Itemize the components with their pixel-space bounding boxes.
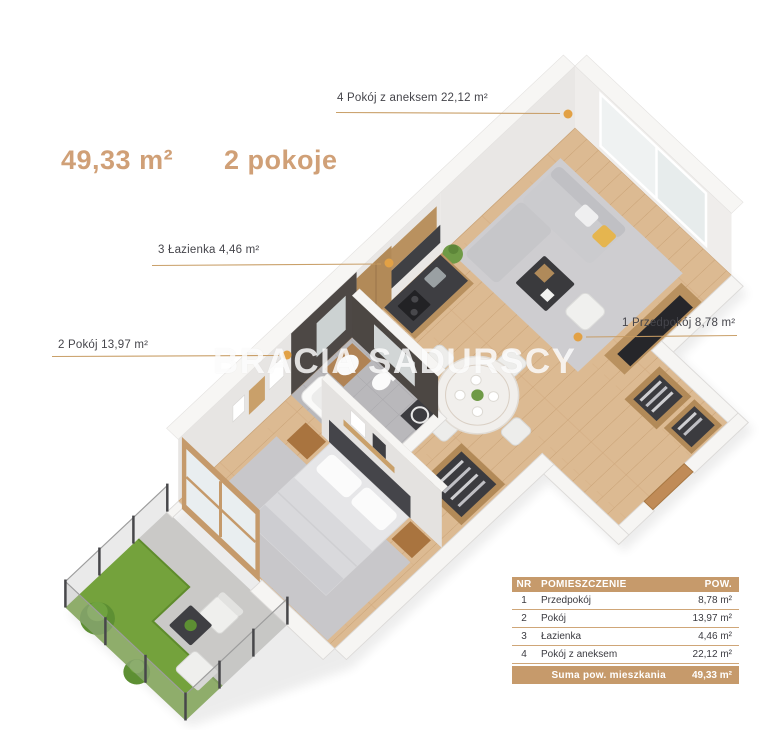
table-row: 2 Pokój 13,97 m² [512, 610, 739, 628]
row-nr: 2 [512, 613, 536, 624]
label-room-2: 2 Pokój 13,97 m² [58, 339, 148, 351]
total-area-headline: 49,33 m² [61, 145, 173, 176]
room-legend-table: NR POMIESZCZENIE POW. 1 Przedpokój 8,78 … [512, 577, 739, 684]
agency-watermark: BRACIA SADURSCY [213, 342, 576, 382]
room-count-headline: 2 pokoje [224, 145, 338, 176]
legend-header-name: POMIESZCZENIE [536, 579, 670, 590]
row-name: Łazienka [536, 631, 670, 642]
legend-header-row: NR POMIESZCZENIE POW. [512, 577, 739, 592]
legend-footer-row: Suma pow. mieszkania 49,33 m² [512, 666, 739, 684]
label-room-4: 4 Pokój z aneksem 22,12 m² [337, 92, 488, 104]
row-area: 8,78 m² [670, 595, 739, 606]
legend-header-nr: NR [512, 579, 536, 590]
row-name: Pokój z aneksem [536, 649, 670, 660]
legend-header-area: POW. [670, 579, 739, 590]
row-name: Przedpokój [536, 595, 670, 606]
legend-total-label: Suma pow. mieszkania [551, 670, 666, 681]
row-area: 13,97 m² [670, 613, 739, 624]
row-area: 22,12 m² [670, 649, 739, 660]
table-row: 1 Przedpokój 8,78 m² [512, 592, 739, 610]
floor-plan-page: 49,33 m² 2 pokoje 4 Pokój z aneksem 22,1… [0, 0, 772, 730]
legend-total-value: 49,33 m² [666, 670, 739, 681]
row-nr: 4 [512, 649, 536, 660]
row-nr: 1 [512, 595, 536, 606]
table-row: 4 Pokój z aneksem 22,12 m² [512, 646, 739, 664]
table-row: 3 Łazienka 4,46 m² [512, 628, 739, 646]
label-room-1: 1 Przedpokój 8,78 m² [622, 317, 735, 329]
row-area: 4,46 m² [670, 631, 739, 642]
row-nr: 3 [512, 631, 536, 642]
label-room-3: 3 Łazienka 4,46 m² [158, 244, 259, 256]
row-name: Pokój [536, 613, 670, 624]
